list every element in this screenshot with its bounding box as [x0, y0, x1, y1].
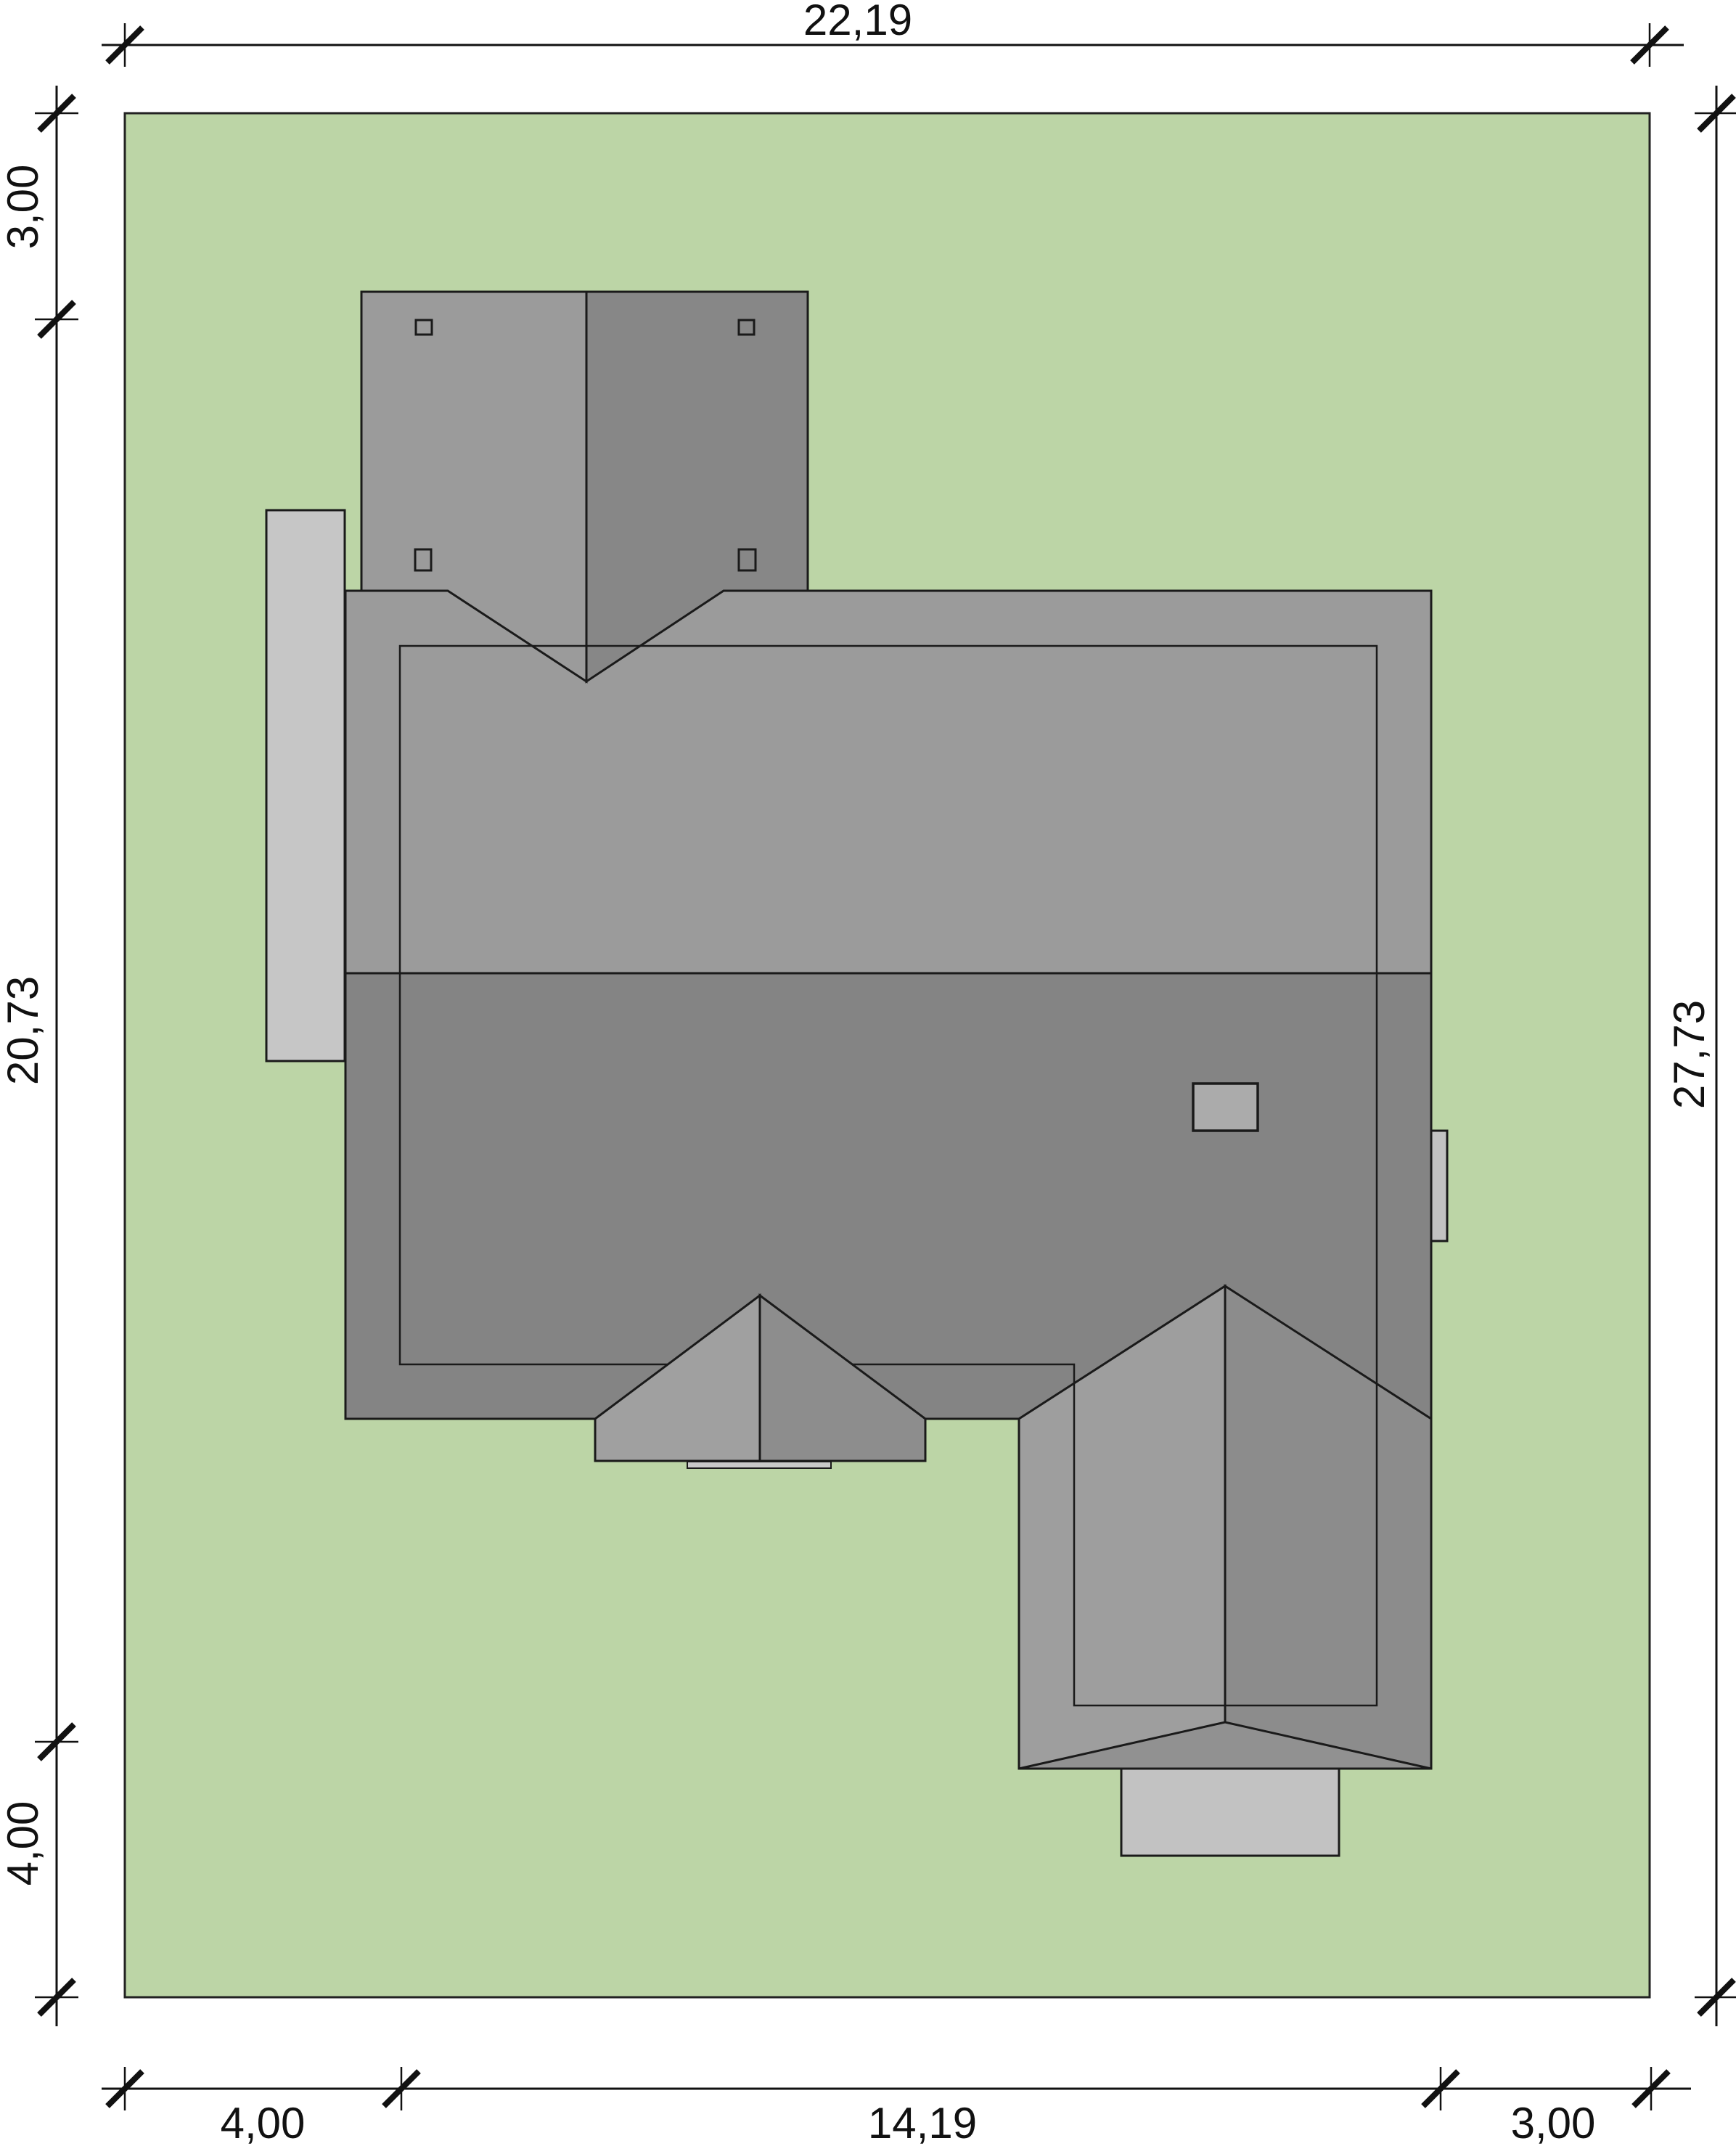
dimension-label-left-middle: 20,73 — [0, 976, 47, 1085]
chimney-vent-top-left — [416, 320, 432, 335]
dimension-label-bottom-right: 3,00 — [1511, 2099, 1596, 2147]
dimension-label-bottom-left: 4,00 — [221, 2099, 306, 2147]
right-edge-tab — [1431, 1131, 1447, 1241]
chimney-vent-bottom-right — [739, 549, 756, 570]
dimension-label-left-bottom: 4,00 — [0, 1801, 47, 1886]
main-chimney — [1193, 1084, 1258, 1131]
chimney-vent-bottom-left — [415, 549, 431, 570]
chimney-vent-top-right — [739, 320, 754, 335]
site-plan-drawing: 22,19 4,00 14,19 3,00 3,00 20,73 4,00 — [0, 0, 1736, 2154]
wing-steps-pad — [1121, 1769, 1339, 1856]
dimension-label-right-total: 27,73 — [1665, 1000, 1714, 1109]
dimension-label-bottom-middle: 14,19 — [868, 2099, 977, 2147]
site-plan-page: 22,19 4,00 14,19 3,00 3,00 20,73 4,00 — [0, 0, 1736, 2154]
dimension-label-left-top: 3,00 — [0, 165, 47, 250]
dimension-label-top-total: 22,19 — [803, 0, 912, 44]
porch-step-strip — [687, 1462, 831, 1468]
main-roof-upper-slope — [345, 591, 1431, 973]
terrace-pad — [266, 510, 345, 1061]
